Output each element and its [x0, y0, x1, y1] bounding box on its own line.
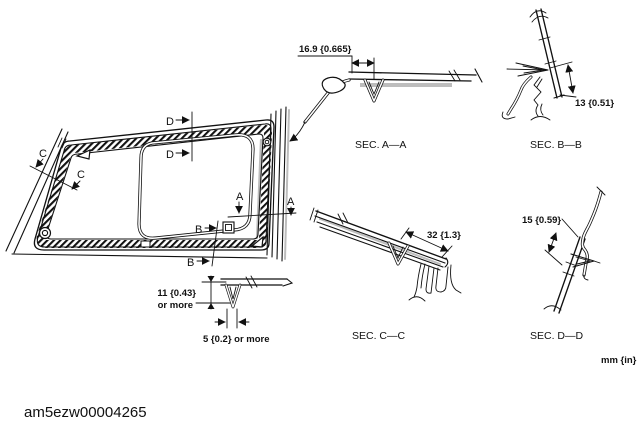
units-note: mm {in}: [601, 355, 637, 366]
section-letter-c: C: [77, 169, 85, 181]
inner-opening-gap: [139, 135, 253, 238]
extension-lines: [352, 56, 374, 79]
band-clip: [141, 241, 150, 247]
sec-b-label: SEC. B—B: [530, 139, 582, 151]
section-a-view: 16.9 {0.665} SEC. A—A: [290, 44, 482, 151]
figure-caption: am5ezw00004265: [24, 404, 147, 421]
hatch-ticks: [246, 276, 257, 288]
shadow-line: [320, 219, 440, 264]
panel-break-curl: [290, 122, 305, 141]
square-clip: [223, 222, 234, 233]
sec-a-label: SEC. A—A: [355, 139, 406, 151]
section-letter-b: B: [195, 224, 202, 236]
sealant-bead-v: [226, 285, 240, 307]
sec-a-dimension: 16.9 {0.665}: [299, 44, 352, 55]
service-manual-figure: D D C C A A B B: [0, 0, 642, 430]
section-b-view: 13 {0.51} SEC. B—B: [502, 9, 614, 151]
sill-line: [12, 254, 267, 258]
sec-c-label: SEC. C—C: [352, 330, 406, 342]
pillar-inner-lines: [414, 264, 425, 297]
bead-size-detail: 11 {0.43} or more 5 {0.2} or more: [157, 276, 292, 345]
bead-height-value: 11 {0.43}: [157, 288, 196, 299]
section-letter-b: B: [187, 257, 194, 269]
section-letter-a: A: [287, 196, 295, 208]
arrow-icon: [208, 276, 215, 282]
inner-opening: [139, 135, 253, 238]
break-tip: [283, 279, 292, 286]
arrow-icon: [72, 181, 80, 189]
pillar-channel: [426, 266, 434, 293]
arrow-icon: [36, 159, 43, 167]
section-letter-d: D: [166, 149, 174, 161]
grommet-icon: [265, 140, 269, 144]
section-letter-a: A: [236, 191, 244, 203]
sec-d-dimension: 15 {0.59}: [522, 215, 561, 226]
section-c-view: 32 {1.3} SEC. C—C: [310, 208, 461, 342]
sec-b-dimension: 13 {0.51}: [575, 98, 614, 109]
dimension-line: [549, 233, 556, 252]
section-letter-d: D: [166, 116, 174, 128]
extension-lines: [227, 309, 237, 328]
end-slashes: [310, 208, 318, 222]
clip-loop: [322, 77, 345, 93]
pillar-channel: [436, 267, 448, 292]
glass-edge: [536, 9, 562, 98]
break-squiggle: [531, 117, 550, 121]
glass-edge: [349, 72, 476, 81]
break-squiggle: [544, 306, 561, 310]
grommet-icon: [42, 230, 47, 235]
break-squiggle: [409, 297, 425, 301]
pillar-outer: [451, 265, 461, 293]
sec-c-dimension: 32 {1.3}: [427, 230, 461, 241]
bead-height-note: or more: [158, 300, 193, 311]
shadow-bar: [360, 83, 452, 87]
clip-zigzag: [534, 77, 543, 116]
sec-d-label: SEC. D—D: [530, 330, 584, 342]
glass-edge: [554, 237, 585, 313]
dimension-line: [568, 65, 573, 93]
section-letter-c: C: [39, 148, 47, 160]
arrow-icon: [208, 303, 215, 309]
section-d-view: 15 {0.59} SEC. D—D: [522, 187, 605, 342]
bead-width-value: 5 {0.2} or more: [203, 334, 270, 345]
extension-lines: [550, 62, 576, 97]
quarter-glass-main-view: D D C C A A B B: [6, 107, 296, 269]
hatch-ticks: [449, 70, 460, 81]
technical-diagram: D D C C A A B B: [0, 0, 642, 430]
